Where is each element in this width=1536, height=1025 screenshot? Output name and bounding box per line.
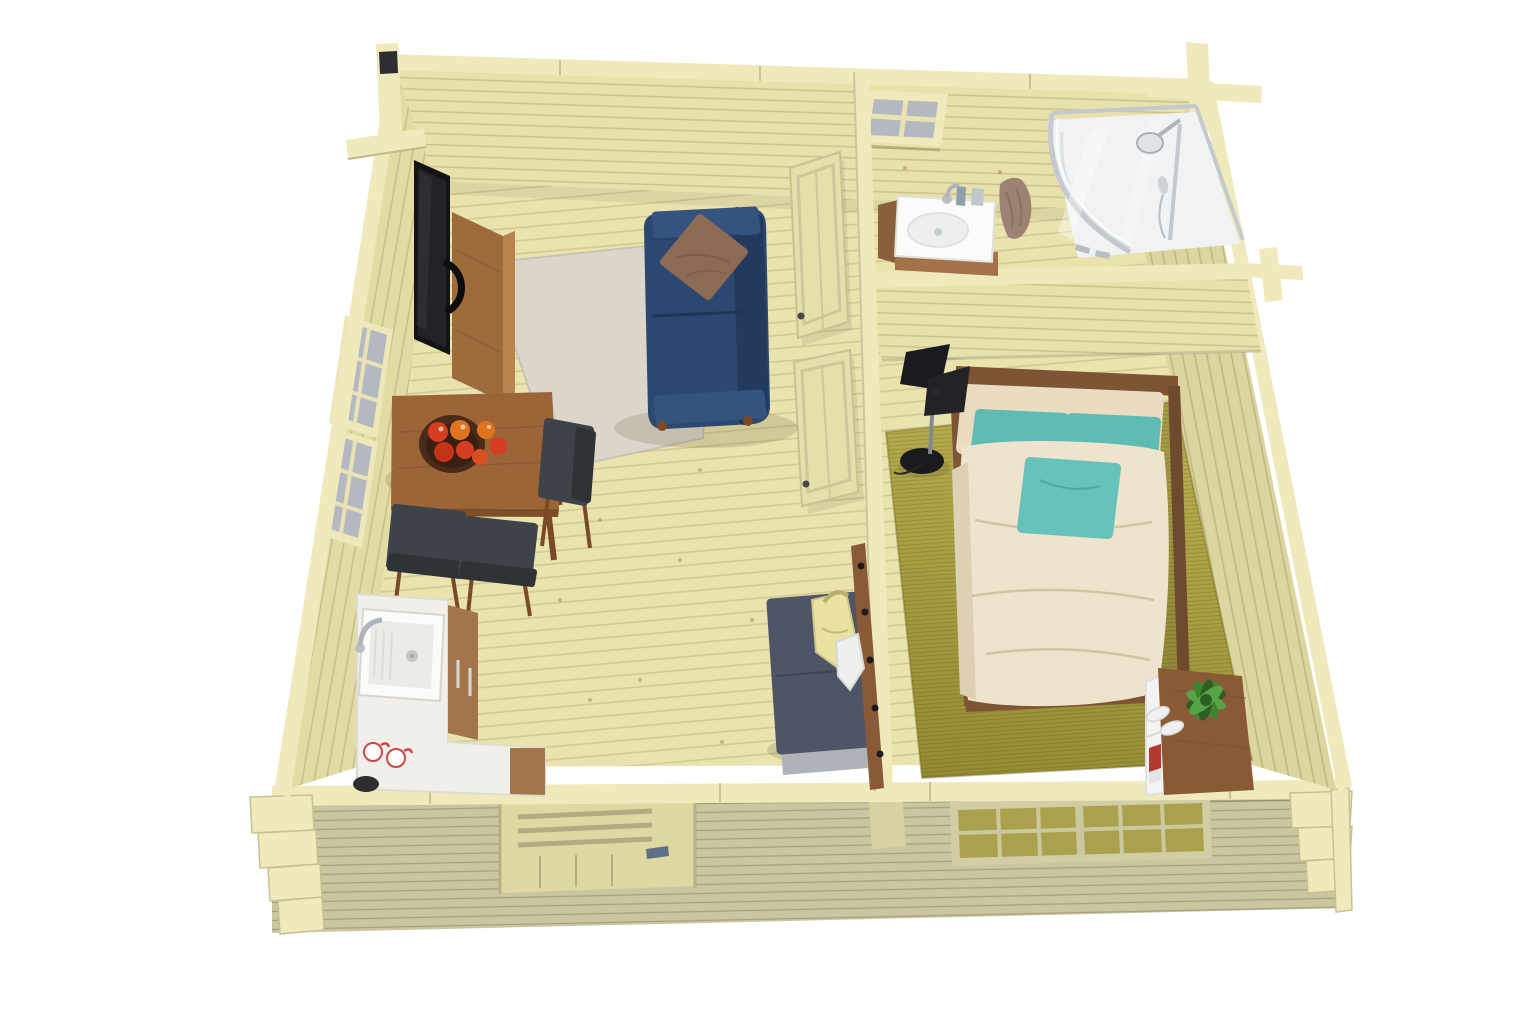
- bathroom-door-open: [790, 152, 852, 346]
- pillow-teal-center: [1022, 462, 1116, 534]
- corner-logs-bottom-left: [250, 795, 324, 934]
- toiletry-bottle: [956, 186, 966, 206]
- door-handle: [803, 481, 810, 488]
- bedroom-door-open: [794, 350, 864, 514]
- front-exterior-wall: [250, 780, 1352, 934]
- door-handle: [798, 313, 805, 320]
- cabin-floorplan-render: [0, 0, 1536, 1025]
- front-window: [950, 795, 1212, 866]
- apple: [472, 449, 488, 465]
- apple: [456, 441, 474, 459]
- post-dark-top: [379, 51, 398, 74]
- apple: [489, 437, 507, 455]
- lamp-base: [900, 448, 944, 474]
- apple: [428, 422, 448, 442]
- apple: [450, 420, 470, 440]
- bathroom-window: [860, 90, 948, 150]
- entrance-door: [500, 793, 695, 894]
- apple: [477, 421, 495, 439]
- cabinet-low: [510, 748, 545, 795]
- pot: [353, 776, 379, 792]
- fruit-bowl: [419, 415, 485, 473]
- sofa-armrest-bottom: [658, 394, 762, 420]
- sofa-backrest: [737, 212, 764, 420]
- partition-cross-stub: [1259, 247, 1283, 302]
- apple: [434, 442, 454, 462]
- double-bed: [950, 366, 1190, 712]
- cabinet-side: [448, 605, 478, 740]
- tv-sideboard: [452, 212, 515, 402]
- toiletry-bottle: [971, 188, 984, 206]
